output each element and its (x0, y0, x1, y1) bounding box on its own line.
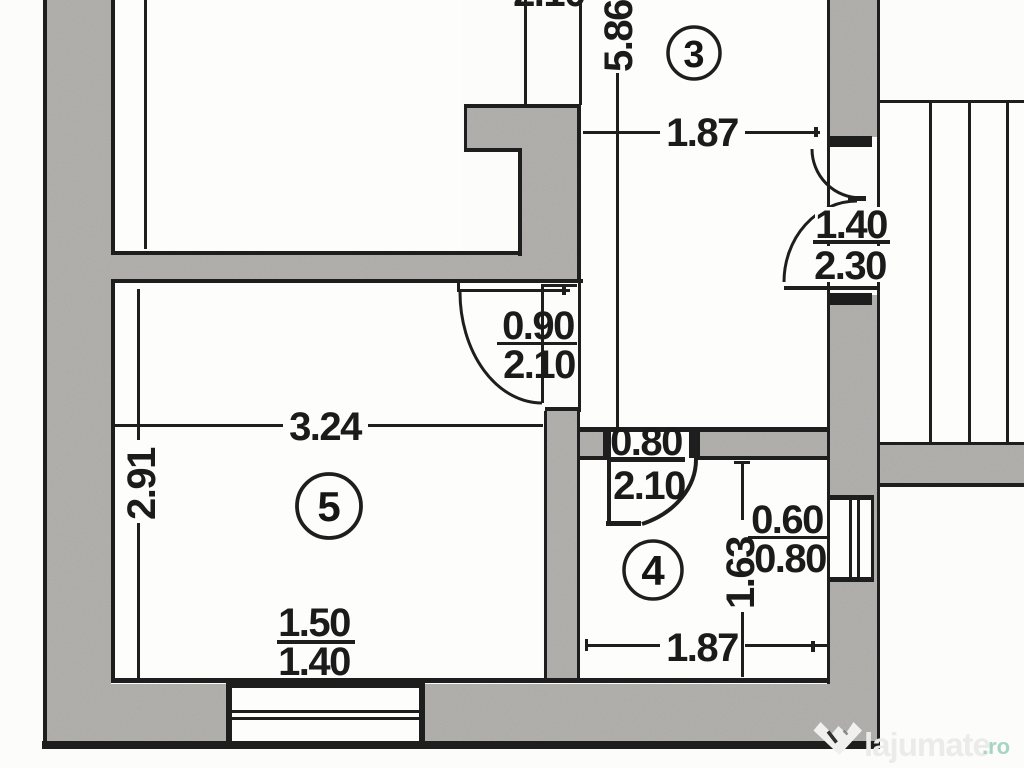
svg-text:2.30: 2.30 (814, 244, 886, 288)
svg-text:4: 4 (641, 547, 665, 594)
svg-text:2.10: 2.10 (513, 0, 585, 15)
svg-text:3.24: 3.24 (289, 405, 363, 449)
svg-text:0.80: 0.80 (754, 537, 826, 581)
svg-text:2.10: 2.10 (503, 343, 575, 387)
svg-text:1.50: 1.50 (278, 601, 350, 645)
svg-text:2.91: 2.91 (120, 447, 164, 520)
svg-text:.ro: .ro (982, 734, 1010, 759)
svg-text:0.90: 0.90 (502, 304, 574, 348)
svg-text:0.60: 0.60 (751, 498, 823, 542)
svg-text:1.87: 1.87 (666, 111, 738, 155)
svg-text:1.40: 1.40 (278, 640, 350, 684)
svg-text:3: 3 (683, 34, 704, 76)
svg-text:2.10: 2.10 (613, 464, 685, 508)
svg-text:1.87: 1.87 (666, 626, 738, 670)
svg-text:lajumate: lajumate (864, 726, 991, 763)
svg-text:5: 5 (317, 483, 340, 530)
svg-text:5.86: 5.86 (597, 0, 641, 72)
